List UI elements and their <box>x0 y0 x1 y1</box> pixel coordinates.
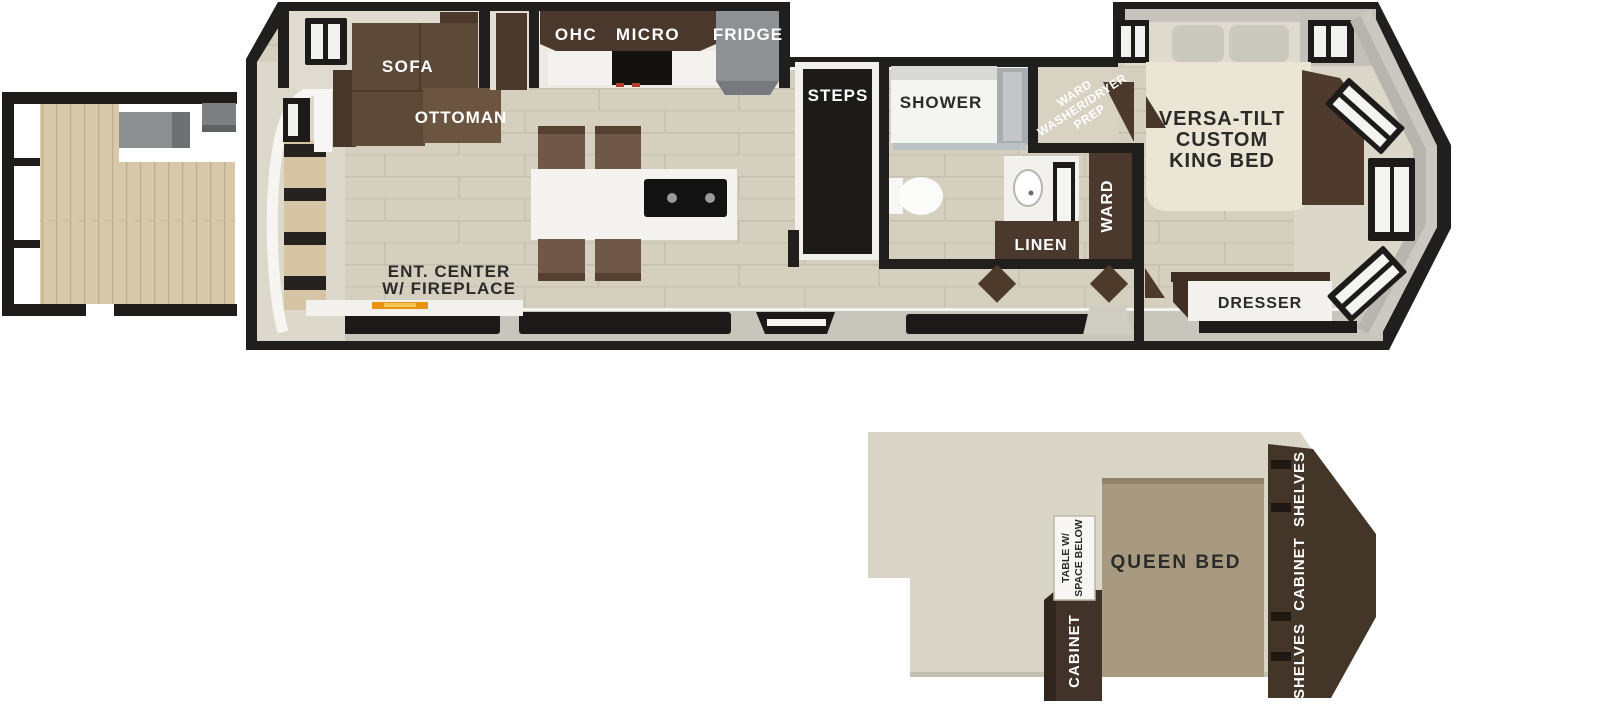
svg-text:OTTOMAN: OTTOMAN <box>415 108 508 127</box>
svg-text:QUEEN BED: QUEEN BED <box>1111 552 1242 573</box>
svg-text:CUSTOM: CUSTOM <box>1176 129 1268 151</box>
svg-text:SHELVES: SHELVES <box>1291 623 1308 699</box>
svg-text:SOFA: SOFA <box>382 57 434 76</box>
svg-text:VERSA-TILT: VERSA-TILT <box>1159 108 1285 130</box>
svg-text:TABLE W/: TABLE W/ <box>1060 533 1072 583</box>
svg-text:W/ FIREPLACE: W/ FIREPLACE <box>382 279 516 298</box>
svg-text:WARD: WARD <box>1099 180 1116 233</box>
svg-text:SHELVES: SHELVES <box>1291 451 1308 527</box>
svg-text:CABINET: CABINET <box>1291 537 1308 611</box>
svg-text:LINEN: LINEN <box>1015 237 1068 254</box>
svg-text:KING BED: KING BED <box>1169 150 1275 172</box>
svg-text:OHC: OHC <box>555 25 597 44</box>
svg-text:STEPS: STEPS <box>808 86 869 105</box>
svg-text:CABINET: CABINET <box>1066 614 1083 688</box>
svg-text:SPACE BELOW: SPACE BELOW <box>1073 519 1085 596</box>
svg-text:SHOWER: SHOWER <box>900 93 983 112</box>
svg-text:DRESSER: DRESSER <box>1218 295 1302 312</box>
svg-text:MICRO: MICRO <box>616 25 680 44</box>
svg-text:FRIDGE: FRIDGE <box>713 25 783 44</box>
